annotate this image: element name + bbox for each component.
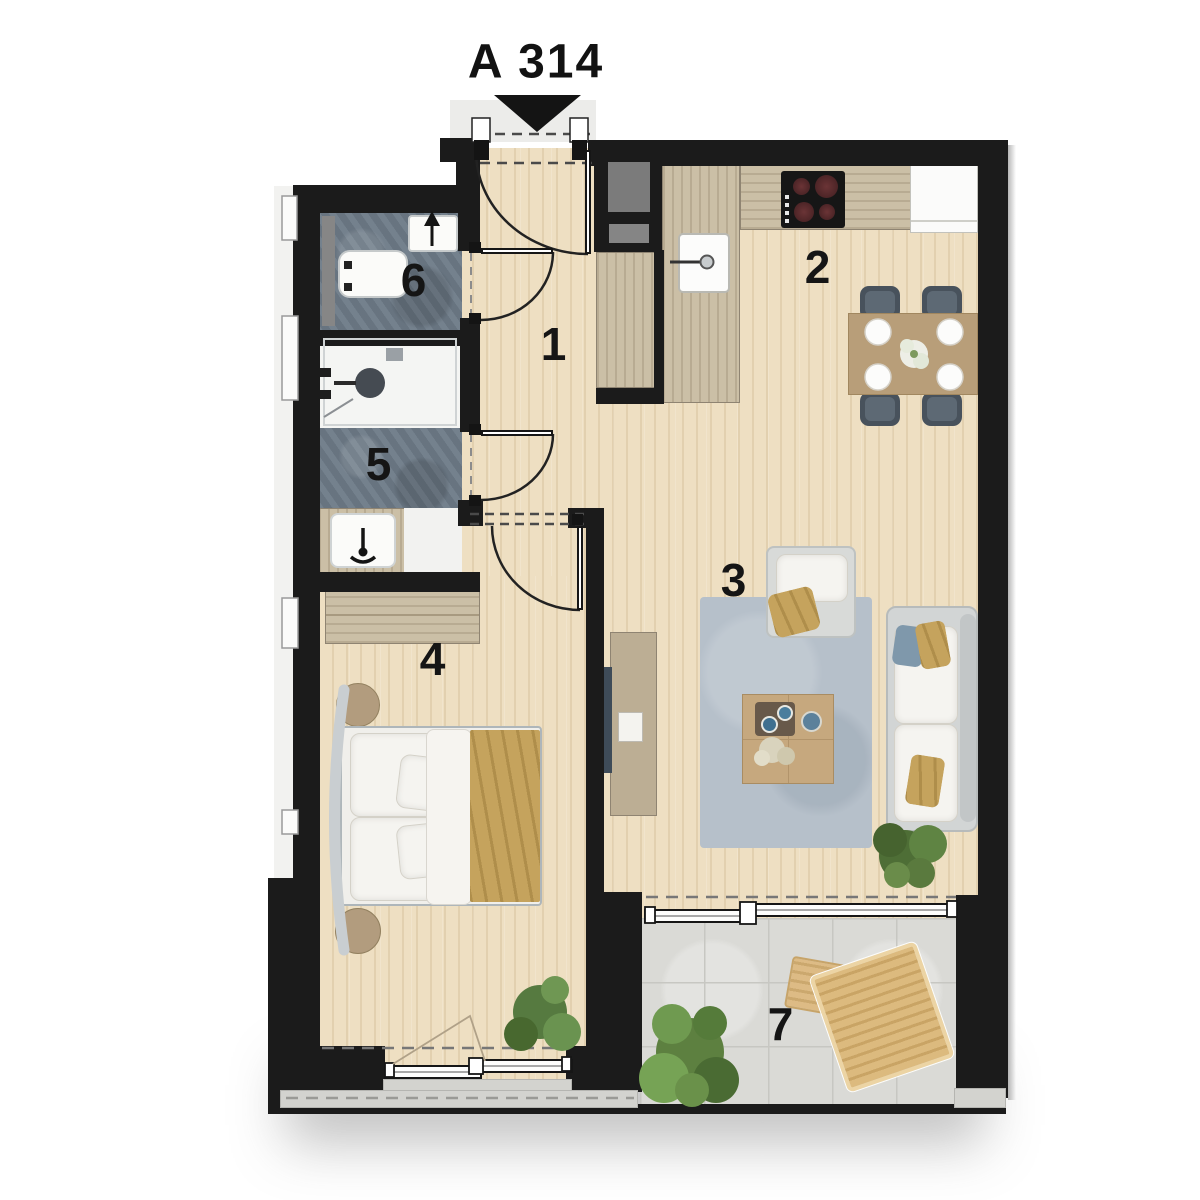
shaft-panel — [609, 224, 649, 243]
bottom-ledge-right — [954, 1088, 1006, 1108]
bathroom-sink — [330, 513, 396, 568]
dining-table — [848, 313, 978, 395]
cup — [761, 716, 778, 733]
entry-exterior-pad — [450, 100, 596, 142]
remote-tray — [618, 712, 643, 742]
cup — [777, 705, 793, 721]
wall-bath-bottom — [293, 572, 480, 592]
room-label-bedroom: 4 — [420, 632, 447, 686]
nightstand — [336, 683, 380, 727]
burner — [793, 178, 810, 195]
bottom-ledge-left — [280, 1090, 638, 1108]
wall-entry-connector — [456, 158, 480, 213]
bedroom-wardrobe — [325, 584, 480, 644]
wall-below-wardrobe — [596, 388, 664, 404]
wall-bedroom-bottom-left — [276, 1046, 385, 1092]
room-label-hall: 1 — [541, 317, 568, 371]
wall-toilet-bath — [318, 330, 480, 346]
coffee-table — [742, 694, 834, 784]
toilet — [338, 250, 408, 298]
dining-chair — [860, 392, 900, 426]
cooktop-controls — [785, 195, 789, 223]
wardrobe-divider — [326, 614, 479, 616]
wall-wardrobe-kitchen — [654, 250, 664, 390]
left-facade-strip — [274, 186, 294, 882]
hall-wardrobe — [596, 252, 656, 388]
room-label-living: 3 — [721, 553, 748, 607]
chair-seat — [865, 291, 895, 315]
wall-right-lower — [956, 895, 1008, 1092]
kitchen-sink — [678, 233, 730, 293]
floor-plan-canvas: A 314 1 2 3 4 5 6 7 — [0, 0, 1200, 1200]
sofa-backrest — [960, 614, 976, 822]
cooktop — [781, 171, 845, 228]
bowl — [801, 711, 822, 732]
chair-seat — [865, 397, 895, 421]
chair-seat — [927, 397, 957, 421]
burner — [794, 202, 814, 222]
shaft-panel — [608, 162, 650, 212]
wall-balcony-column — [586, 892, 642, 1092]
wall-wetblock-top — [293, 185, 480, 213]
wall-hall-seg-c — [458, 500, 483, 526]
armchair — [766, 546, 856, 638]
right-facade-edge — [1008, 145, 1016, 1100]
dining-chair — [922, 392, 962, 426]
room-label-kitchen: 2 — [805, 240, 832, 294]
toilet-duct-strip — [322, 216, 335, 326]
room-label-balcony: 7 — [768, 997, 795, 1051]
bathroom-vanity-white — [404, 508, 462, 574]
sofa — [886, 606, 978, 832]
refrigerator-divider — [911, 220, 977, 222]
room-label-toilet: 6 — [401, 253, 428, 307]
nightstand — [335, 908, 381, 954]
refrigerator — [910, 163, 978, 233]
burner — [819, 204, 835, 220]
serving-tray — [755, 702, 795, 736]
wall-hall-seg-a — [458, 213, 480, 251]
chair-seat — [927, 291, 957, 315]
burner — [815, 175, 838, 198]
folded-duvet — [426, 729, 472, 905]
apartment-title: A 314 — [468, 35, 604, 90]
wall-bedroom-doorpost — [568, 508, 590, 528]
toilet-sink — [408, 215, 458, 252]
shower-area — [318, 334, 462, 430]
bed — [340, 726, 542, 906]
wall-hall-seg-b — [460, 318, 480, 432]
wall-bedroom-living — [586, 508, 604, 900]
bed-blanket — [470, 730, 540, 902]
room-label-bathroom: 5 — [366, 437, 393, 491]
